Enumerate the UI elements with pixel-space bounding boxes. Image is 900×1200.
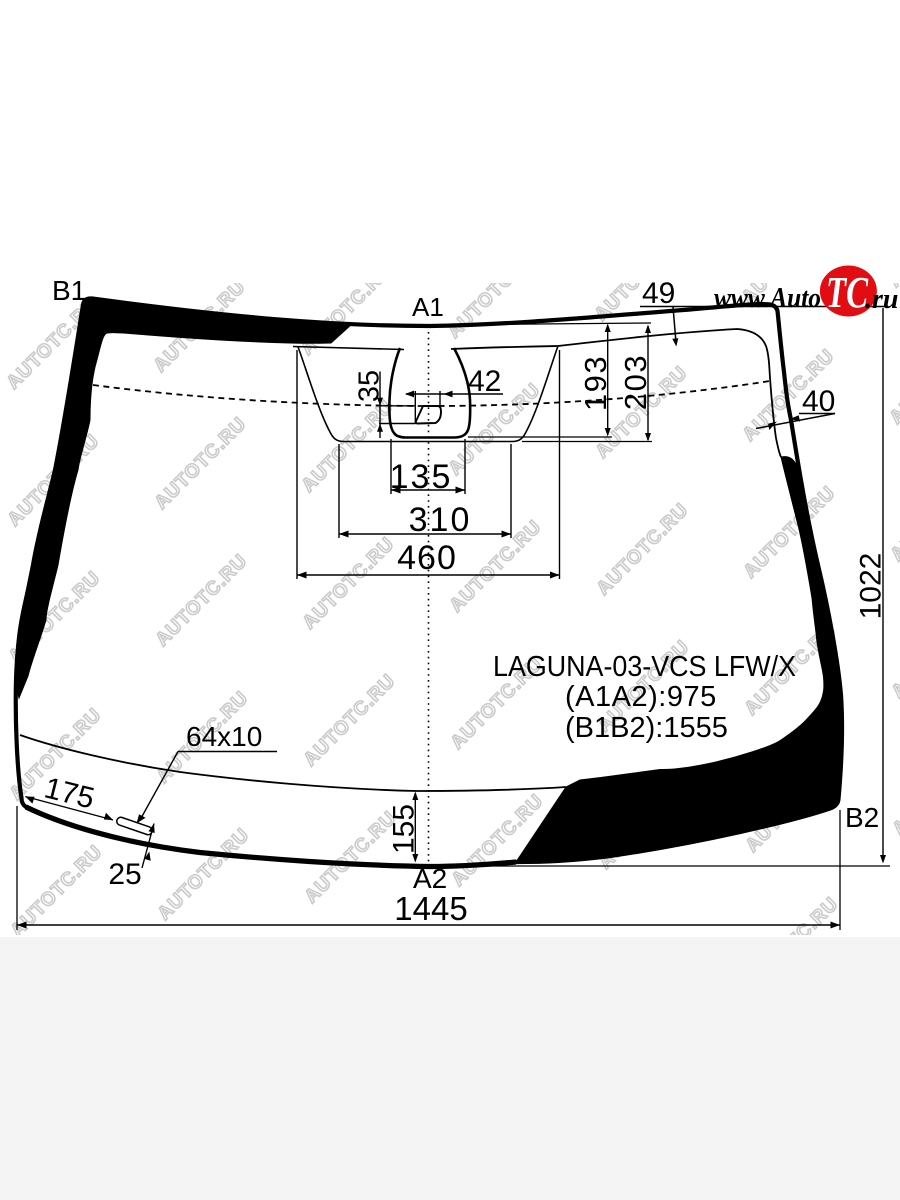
svg-text:(A1A2):975: (A1A2):975	[565, 681, 717, 713]
svg-text:155: 155	[388, 804, 421, 854]
svg-text:25: 25	[108, 858, 141, 891]
svg-text:310: 310	[409, 501, 472, 539]
svg-text:1022: 1022	[855, 553, 888, 620]
svg-text:B2: B2	[845, 802, 879, 833]
svg-text:193: 193	[578, 355, 613, 411]
svg-text:A2: A2	[413, 863, 447, 894]
svg-text:(B1B2):1555: (B1B2):1555	[565, 712, 728, 744]
svg-text:49: 49	[642, 277, 675, 310]
svg-text:LAGUNA-03-VCS LFW/X: LAGUNA-03-VCS LFW/X	[493, 651, 796, 683]
svg-text:.ru: .ru	[865, 284, 898, 315]
svg-text:A1: A1	[412, 292, 444, 322]
svg-text:B1: B1	[52, 275, 86, 306]
svg-text:64x10: 64x10	[186, 721, 262, 752]
svg-text:TC: TC	[826, 268, 868, 317]
svg-text:www.Auto: www.Auto	[714, 282, 821, 314]
svg-text:1445: 1445	[394, 890, 467, 927]
svg-text:203: 203	[618, 354, 653, 410]
svg-text:42: 42	[468, 365, 501, 398]
svg-text:460: 460	[397, 539, 457, 577]
svg-text:35: 35	[354, 370, 386, 402]
svg-text:135: 135	[390, 458, 453, 496]
